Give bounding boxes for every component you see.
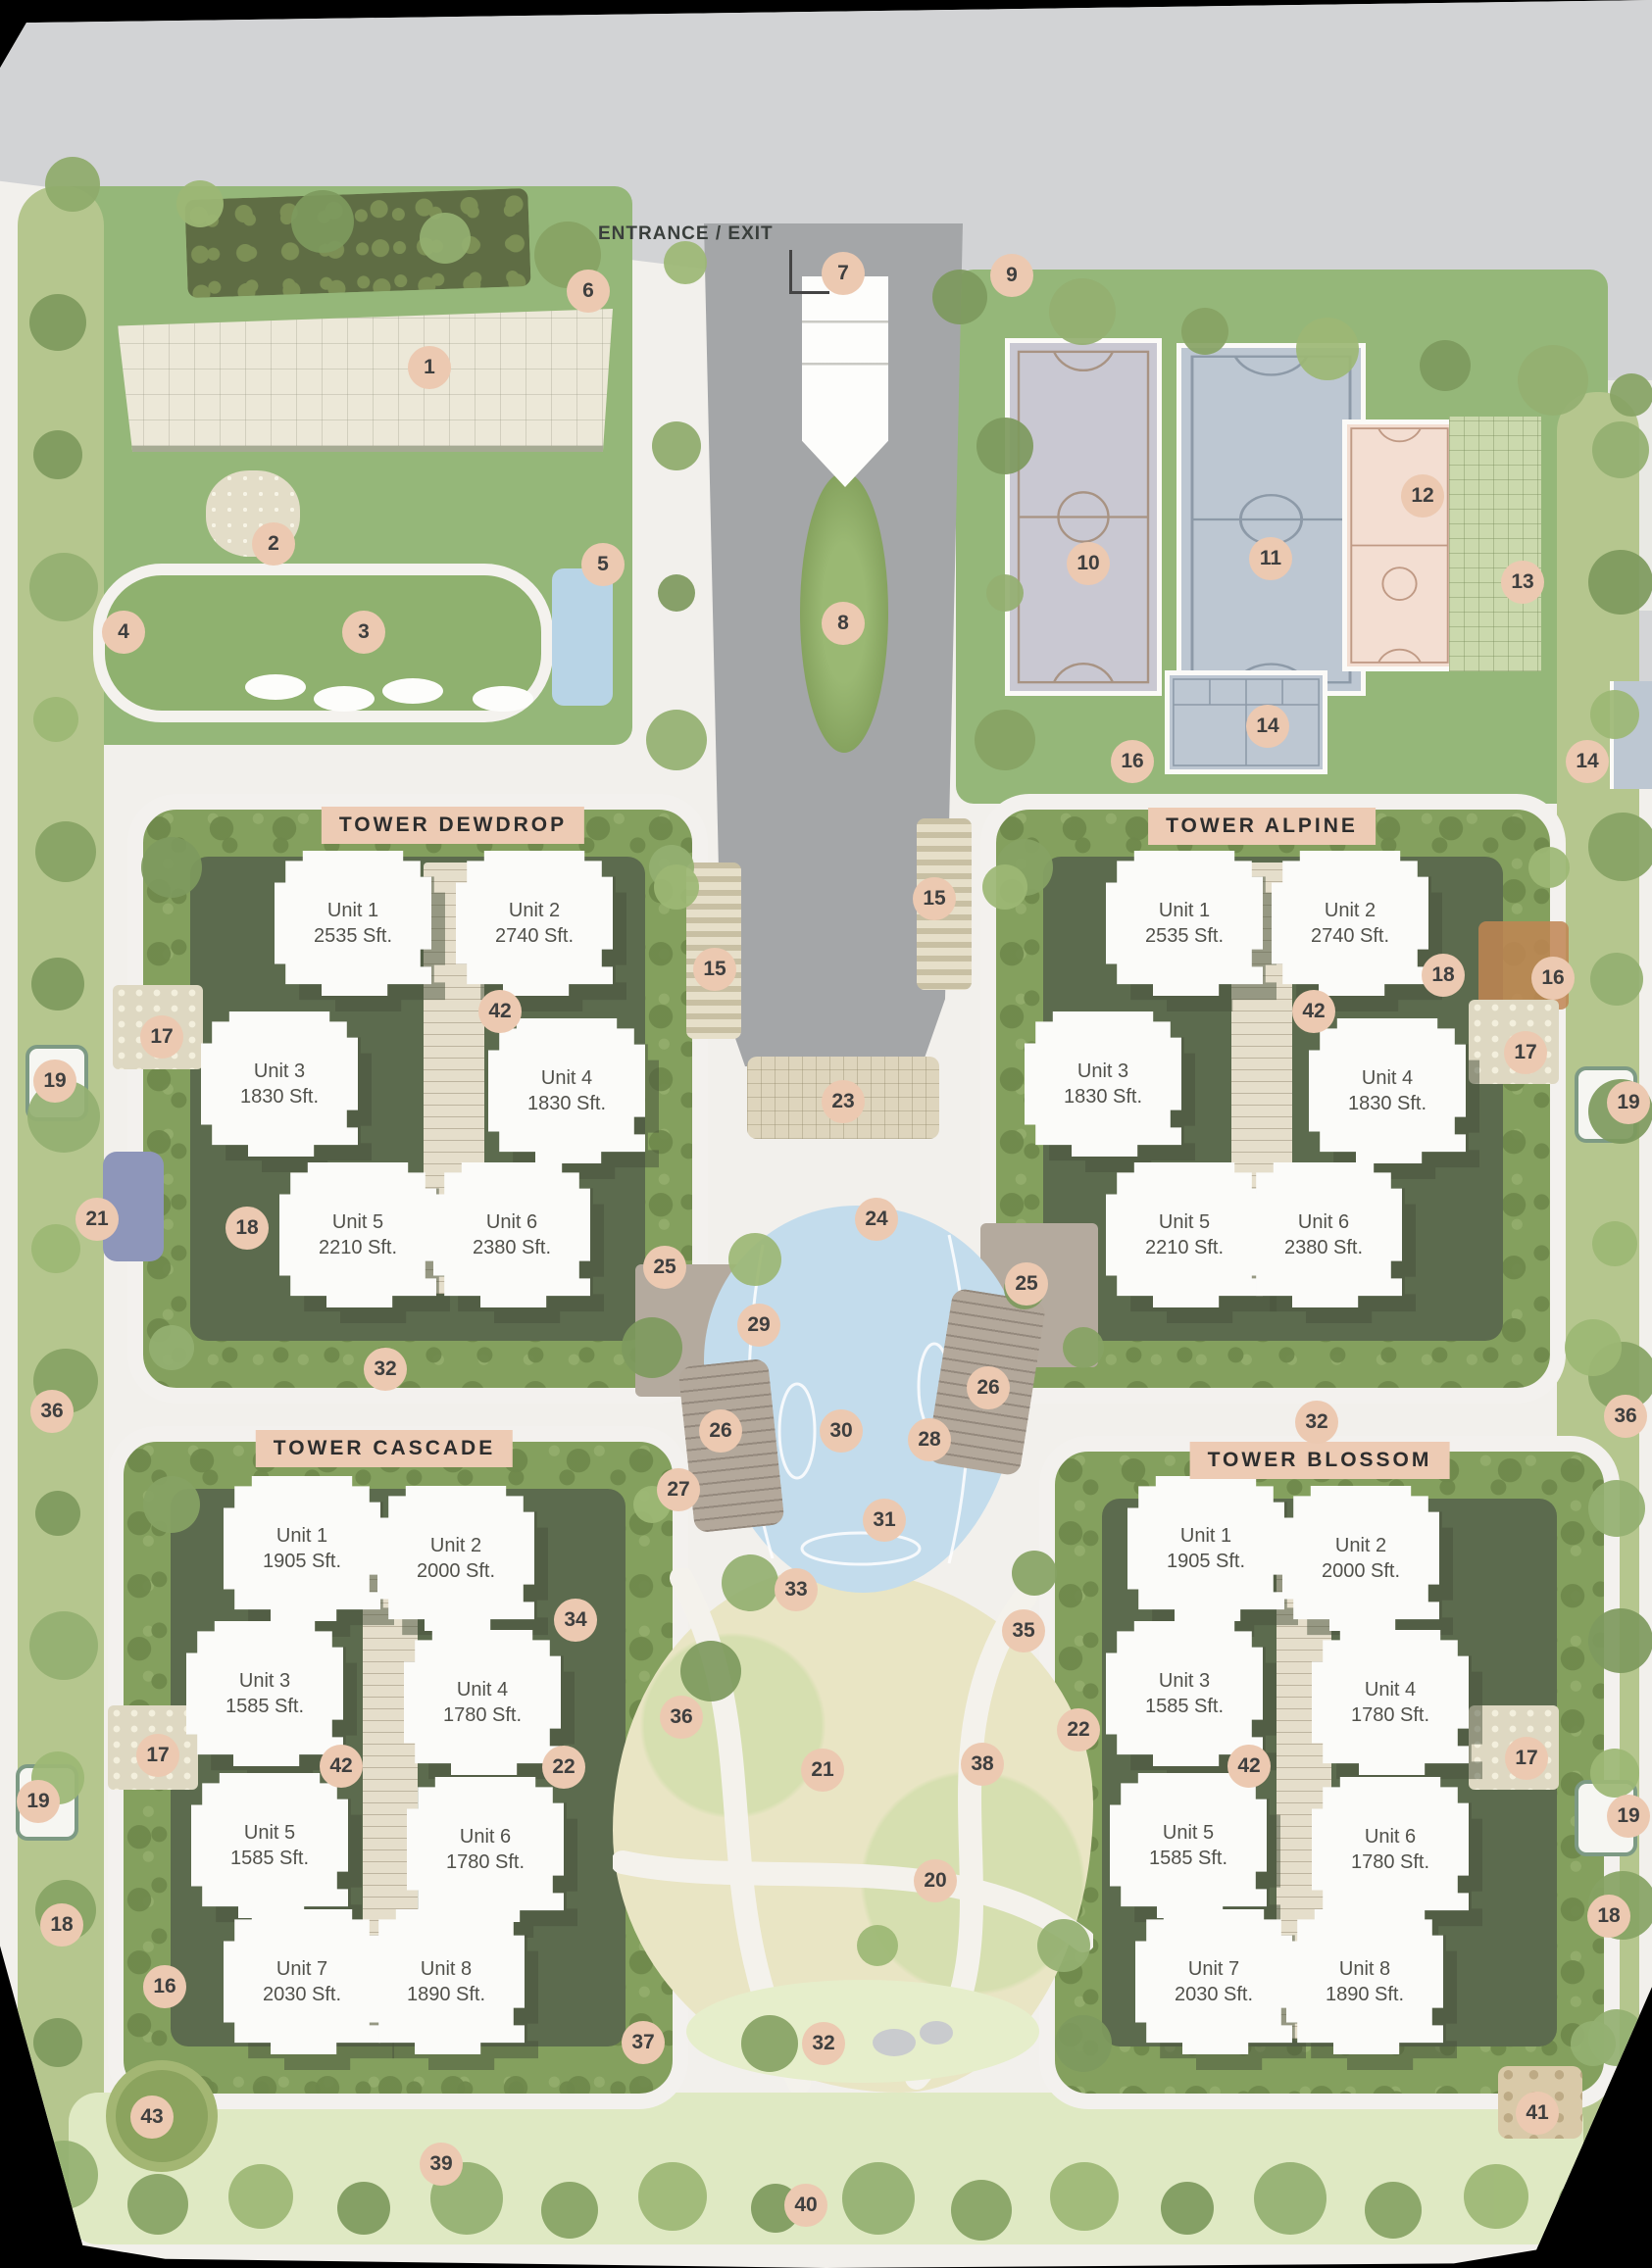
- map-marker-5[interactable]: 5: [581, 543, 625, 586]
- map-marker-21[interactable]: 21: [801, 1749, 844, 1792]
- map-marker-17[interactable]: 17: [140, 1015, 183, 1059]
- map-marker-42[interactable]: 42: [478, 990, 522, 1033]
- map-marker-19[interactable]: 19: [1607, 1795, 1650, 1838]
- map-marker-36[interactable]: 36: [660, 1696, 703, 1739]
- map-marker-34[interactable]: 34: [554, 1599, 597, 1642]
- map-marker-27[interactable]: 27: [657, 1468, 700, 1511]
- map-marker-19[interactable]: 19: [33, 1060, 76, 1103]
- map-marker-39[interactable]: 39: [420, 2143, 463, 2186]
- map-marker-22[interactable]: 22: [1057, 1708, 1100, 1751]
- map-marker-32[interactable]: 32: [1295, 1401, 1338, 1444]
- map-marker-17[interactable]: 17: [1504, 1031, 1547, 1074]
- map-marker-18[interactable]: 18: [225, 1207, 269, 1250]
- map-marker-13[interactable]: 13: [1501, 561, 1544, 604]
- map-marker-14[interactable]: 14: [1566, 740, 1609, 783]
- map-marker-17[interactable]: 17: [1505, 1737, 1548, 1780]
- map-marker-24[interactable]: 24: [855, 1198, 898, 1241]
- map-marker-42[interactable]: 42: [1227, 1745, 1271, 1788]
- map-marker-16[interactable]: 16: [1111, 740, 1154, 783]
- map-marker-43[interactable]: 43: [130, 2095, 174, 2139]
- map-marker-2[interactable]: 2: [252, 522, 295, 566]
- markers-layer: 1234567891011121314141515161616171717171…: [0, 0, 1652, 2268]
- map-marker-36[interactable]: 36: [1604, 1395, 1647, 1438]
- map-marker-17[interactable]: 17: [136, 1734, 179, 1777]
- map-marker-30[interactable]: 30: [820, 1409, 863, 1453]
- map-marker-29[interactable]: 29: [737, 1304, 780, 1347]
- map-marker-18[interactable]: 18: [1422, 954, 1465, 997]
- map-marker-8[interactable]: 8: [822, 602, 865, 645]
- map-marker-25[interactable]: 25: [1005, 1262, 1048, 1306]
- map-marker-38[interactable]: 38: [961, 1743, 1004, 1786]
- map-marker-18[interactable]: 18: [40, 1903, 83, 1947]
- map-marker-42[interactable]: 42: [320, 1745, 363, 1788]
- map-marker-41[interactable]: 41: [1516, 2092, 1559, 2135]
- entrance-callout-line: [789, 250, 829, 294]
- map-marker-21[interactable]: 21: [75, 1198, 119, 1241]
- map-marker-1[interactable]: 1: [408, 346, 451, 389]
- map-marker-19[interactable]: 19: [17, 1780, 60, 1823]
- map-marker-40[interactable]: 40: [784, 2184, 827, 2227]
- map-marker-36[interactable]: 36: [30, 1390, 74, 1433]
- map-marker-26[interactable]: 26: [967, 1366, 1010, 1409]
- map-marker-32[interactable]: 32: [802, 2022, 845, 2065]
- map-marker-15[interactable]: 15: [913, 877, 956, 920]
- map-marker-11[interactable]: 11: [1249, 537, 1292, 580]
- map-marker-14[interactable]: 14: [1246, 705, 1289, 748]
- map-marker-23[interactable]: 23: [822, 1080, 865, 1123]
- map-marker-26[interactable]: 26: [699, 1409, 742, 1453]
- map-marker-20[interactable]: 20: [914, 1859, 957, 1902]
- map-marker-32[interactable]: 32: [364, 1348, 407, 1391]
- map-marker-12[interactable]: 12: [1401, 474, 1444, 518]
- map-marker-10[interactable]: 10: [1067, 542, 1110, 585]
- map-marker-4[interactable]: 4: [102, 611, 145, 654]
- entrance-exit-label: ENTRANCE / EXIT: [598, 223, 774, 245]
- map-marker-18[interactable]: 18: [1587, 1895, 1630, 1938]
- map-marker-31[interactable]: 31: [863, 1499, 906, 1542]
- map-marker-37[interactable]: 37: [622, 2021, 665, 2064]
- site-plan-map: ENTRANCE / EXIT: [0, 0, 1652, 2268]
- map-marker-42[interactable]: 42: [1292, 990, 1335, 1033]
- map-marker-16[interactable]: 16: [143, 1965, 186, 2008]
- map-marker-33[interactable]: 33: [775, 1568, 818, 1611]
- map-marker-19[interactable]: 19: [1607, 1081, 1650, 1124]
- map-marker-15[interactable]: 15: [693, 948, 736, 991]
- map-marker-16[interactable]: 16: [1531, 957, 1575, 1000]
- map-marker-28[interactable]: 28: [908, 1418, 951, 1461]
- map-marker-35[interactable]: 35: [1002, 1609, 1045, 1652]
- map-marker-6[interactable]: 6: [567, 270, 610, 313]
- map-marker-3[interactable]: 3: [342, 611, 385, 654]
- map-marker-25[interactable]: 25: [643, 1246, 686, 1289]
- map-marker-22[interactable]: 22: [542, 1746, 585, 1789]
- map-marker-9[interactable]: 9: [990, 254, 1033, 297]
